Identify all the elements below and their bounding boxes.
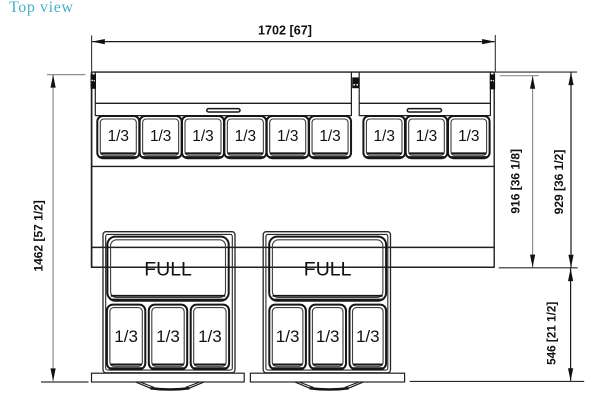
svg-text:916 [36 1/8]: 916 [36 1/8] [508, 149, 522, 214]
svg-text:1702 [67]: 1702 [67] [258, 24, 312, 38]
svg-text:1/3: 1/3 [316, 327, 340, 346]
svg-text:Top view: Top view [9, 0, 74, 16]
svg-text:1462 [57 1/2]: 1462 [57 1/2] [32, 200, 46, 271]
svg-text:FULL: FULL [144, 258, 192, 280]
svg-text:1/3: 1/3 [192, 128, 213, 145]
svg-text:1/3: 1/3 [277, 128, 298, 145]
svg-text:1/3: 1/3 [198, 327, 222, 346]
svg-text:1/3: 1/3 [156, 327, 180, 346]
svg-text:1/3: 1/3 [150, 128, 171, 145]
svg-text:929 [36 1/2]: 929 [36 1/2] [552, 150, 566, 215]
svg-text:1/3: 1/3 [235, 128, 256, 145]
svg-text:1/3: 1/3 [416, 128, 437, 145]
svg-text:1/3: 1/3 [108, 128, 129, 145]
svg-text:1/3: 1/3 [319, 128, 340, 145]
svg-text:FULL: FULL [304, 258, 352, 280]
svg-text:1/3: 1/3 [276, 327, 300, 346]
svg-text:1/3: 1/3 [458, 128, 479, 145]
svg-text:1/3: 1/3 [356, 327, 380, 346]
svg-text:1/3: 1/3 [373, 128, 394, 145]
svg-text:1/3: 1/3 [114, 327, 138, 346]
svg-text:546 [21 1/2]: 546 [21 1/2] [546, 302, 559, 365]
